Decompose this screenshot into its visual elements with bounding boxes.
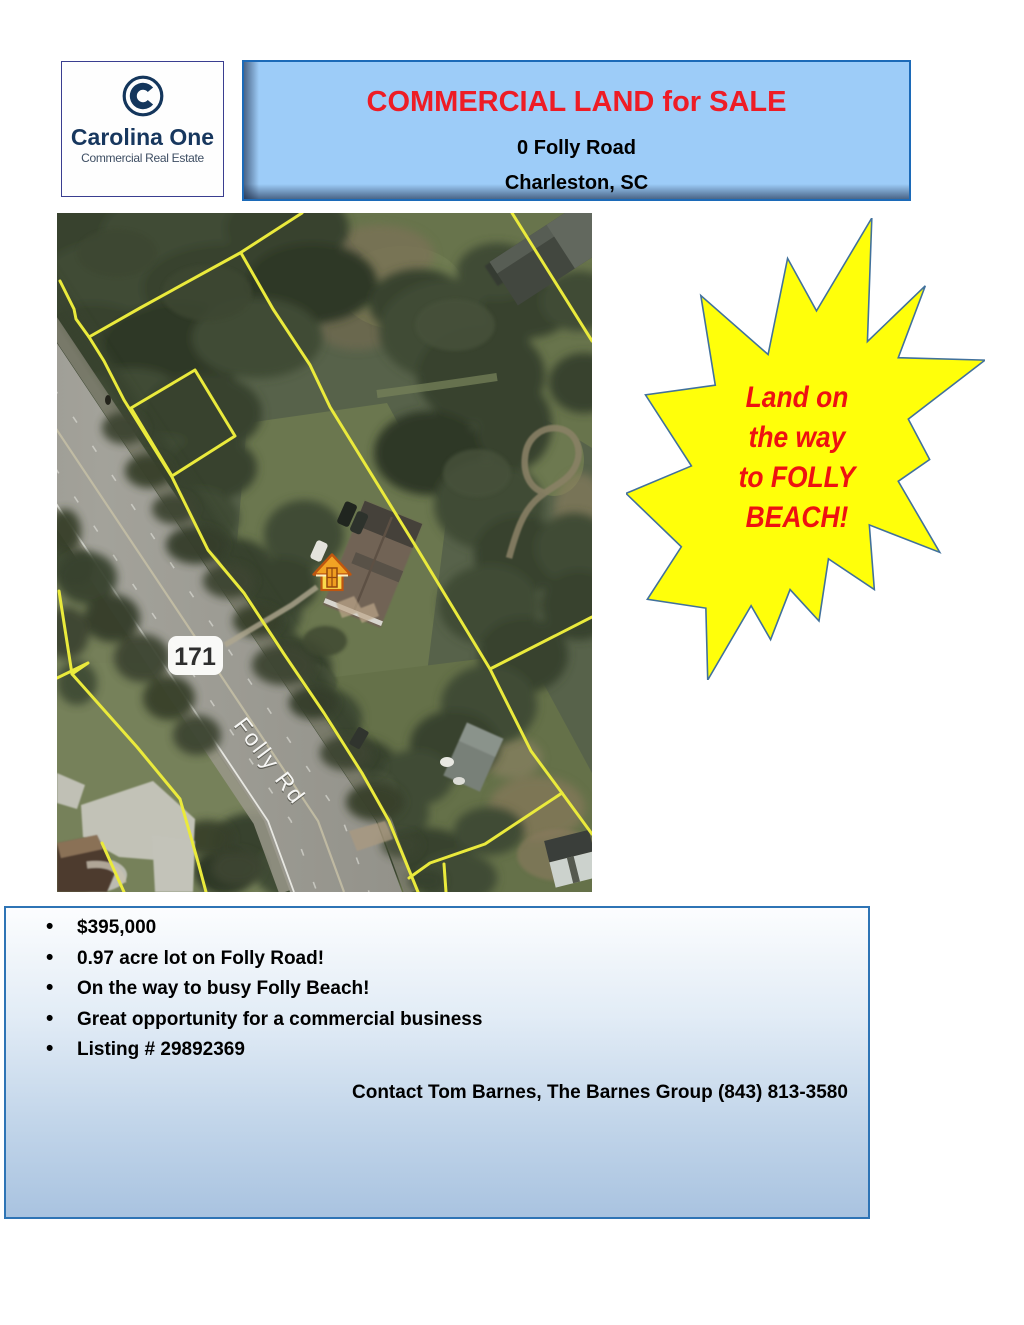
svg-text:171: 171 <box>174 643 216 671</box>
